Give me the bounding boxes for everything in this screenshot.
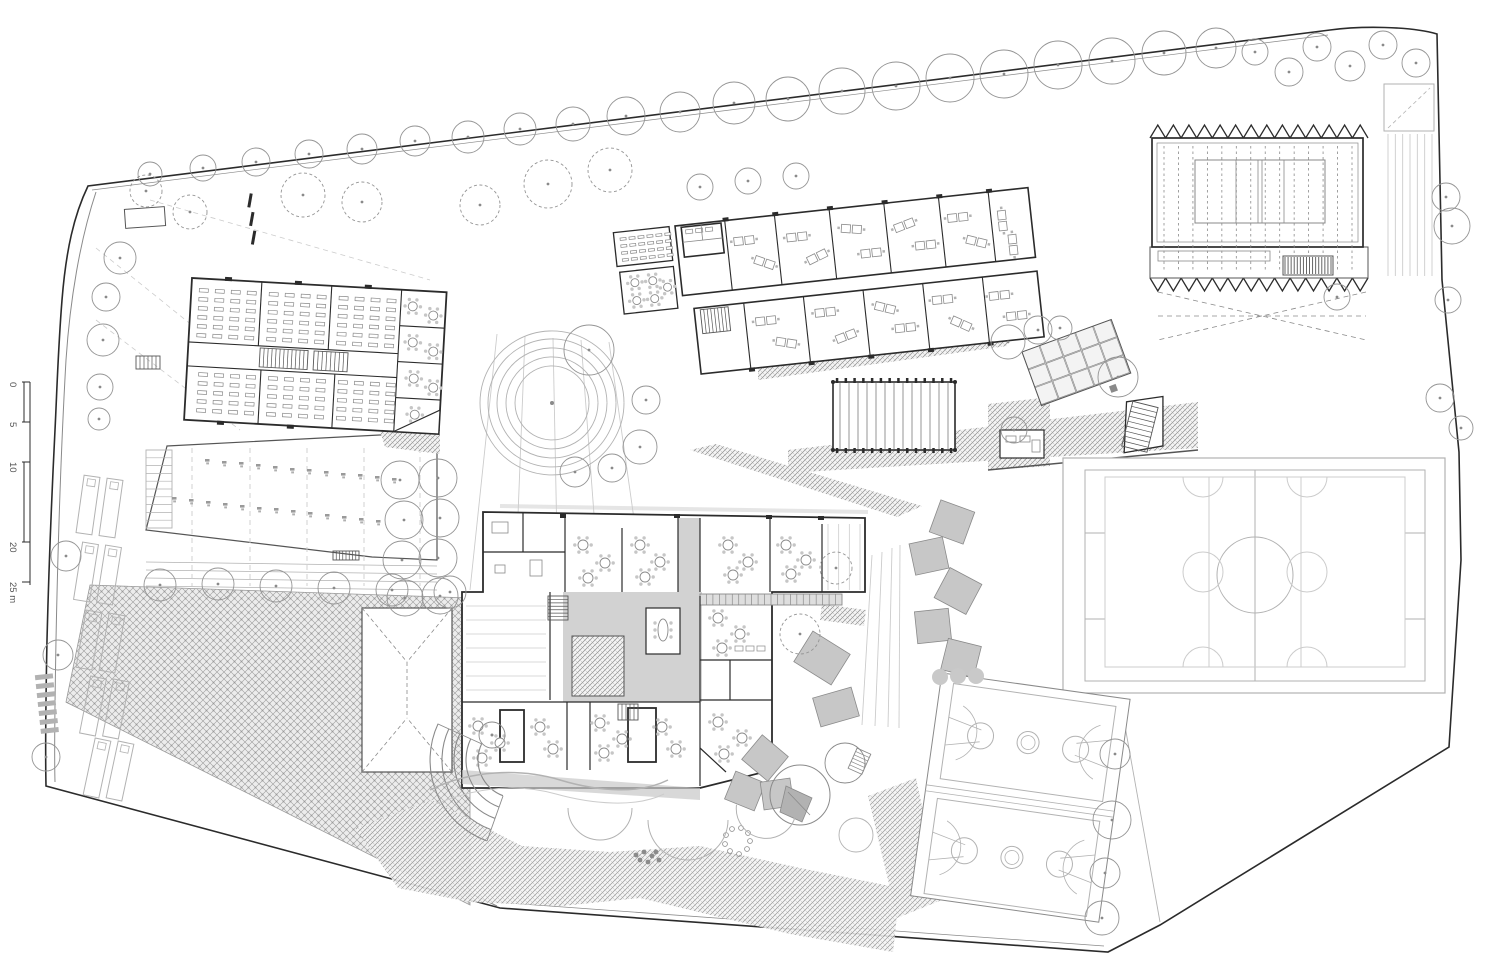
chair xyxy=(730,536,733,539)
tree-trunk xyxy=(1057,64,1060,67)
tree-trunk xyxy=(1445,196,1448,199)
tick xyxy=(880,448,883,453)
tick xyxy=(888,378,891,383)
desk xyxy=(301,303,310,307)
tree-trunk xyxy=(1415,62,1418,65)
desk xyxy=(369,409,378,413)
chair xyxy=(722,550,725,553)
tick xyxy=(906,448,909,453)
desk xyxy=(353,333,362,337)
tick xyxy=(871,448,874,453)
chair xyxy=(485,724,488,727)
chair xyxy=(590,721,593,724)
desk xyxy=(317,304,326,308)
tree-trunk xyxy=(189,211,192,214)
kiosk xyxy=(1000,430,1044,458)
desk xyxy=(269,301,278,305)
tree-trunk xyxy=(1288,71,1291,74)
tree-trunk xyxy=(572,123,575,126)
scale-bar: 05102025 m xyxy=(7,382,30,603)
chair xyxy=(647,543,650,546)
rect xyxy=(1150,247,1368,278)
yard-mark xyxy=(172,497,177,502)
chair xyxy=(607,568,610,571)
yard-mark xyxy=(291,510,296,515)
desk xyxy=(336,416,345,420)
rect xyxy=(674,514,680,518)
dot xyxy=(642,850,647,855)
chair xyxy=(736,743,739,746)
tree-trunk xyxy=(467,136,470,139)
group xyxy=(848,748,871,774)
tree xyxy=(968,668,984,684)
shelter xyxy=(124,207,165,229)
desk xyxy=(214,382,223,386)
chair xyxy=(480,731,483,734)
chair xyxy=(667,560,670,563)
sports-field xyxy=(1063,458,1445,693)
yard-mark xyxy=(206,501,211,506)
yard-mark xyxy=(256,464,261,469)
yard-mark xyxy=(290,468,295,473)
dot xyxy=(654,850,659,855)
chair xyxy=(598,758,601,761)
chair xyxy=(781,572,784,575)
tree xyxy=(504,113,536,145)
chair xyxy=(738,560,741,563)
desk xyxy=(215,289,224,293)
tree xyxy=(1434,208,1470,244)
line xyxy=(146,570,437,574)
line xyxy=(888,548,892,727)
tree xyxy=(460,185,500,225)
tick xyxy=(871,378,874,383)
desk xyxy=(229,326,238,330)
chair xyxy=(489,756,492,759)
desk xyxy=(630,250,636,253)
tree-trunk xyxy=(625,115,628,118)
tree-trunk xyxy=(1439,397,1442,400)
chair xyxy=(639,568,642,571)
tree-trunk xyxy=(439,595,442,598)
chair xyxy=(734,639,737,642)
desk xyxy=(283,395,292,399)
dot xyxy=(638,858,643,863)
tree-trunk xyxy=(217,583,220,586)
desk xyxy=(337,341,346,345)
desk xyxy=(337,332,346,336)
tree-trunk xyxy=(449,591,452,594)
tree-trunk xyxy=(414,140,417,143)
desk xyxy=(230,308,239,312)
chair xyxy=(472,756,475,759)
parking-stall xyxy=(83,738,111,798)
chair xyxy=(595,576,598,579)
chair xyxy=(725,616,728,619)
chair xyxy=(542,718,545,721)
tree xyxy=(1275,58,1303,86)
tree-trunk xyxy=(399,479,402,482)
tree-trunk xyxy=(98,418,101,421)
desk xyxy=(369,400,378,404)
chair xyxy=(560,747,563,750)
tick xyxy=(888,448,891,453)
dot xyxy=(550,401,554,405)
desk xyxy=(284,311,293,315)
chair xyxy=(642,536,645,539)
chair xyxy=(735,543,738,546)
chair xyxy=(653,628,656,631)
desk xyxy=(285,302,294,306)
tree xyxy=(421,499,459,537)
desk xyxy=(339,305,348,309)
chair xyxy=(611,751,614,754)
tick xyxy=(941,378,944,383)
chair xyxy=(793,543,796,546)
chair xyxy=(712,646,715,649)
shrub xyxy=(968,668,984,684)
tree xyxy=(88,408,110,430)
tree xyxy=(51,541,81,571)
tree-trunk xyxy=(1101,917,1104,920)
chair xyxy=(616,744,619,747)
yard-mark xyxy=(308,512,313,517)
chair xyxy=(669,621,672,624)
desk xyxy=(354,306,363,310)
tree xyxy=(1426,384,1454,412)
desk xyxy=(215,373,224,377)
dot xyxy=(723,842,728,847)
desk xyxy=(354,390,363,394)
desk xyxy=(354,381,363,385)
chair xyxy=(718,543,721,546)
tree-trunk xyxy=(1382,44,1385,47)
tree-trunk xyxy=(1104,872,1107,875)
tree xyxy=(104,242,136,274)
chair xyxy=(727,580,730,583)
sawtooth-roof-edge xyxy=(1150,125,1368,138)
rect xyxy=(225,277,232,281)
chair xyxy=(724,639,727,642)
chair xyxy=(669,628,672,631)
tree-trunk xyxy=(437,557,440,560)
polygon xyxy=(355,800,610,906)
chair xyxy=(650,560,653,563)
chair xyxy=(720,623,723,626)
chair xyxy=(720,727,723,730)
tree-trunk xyxy=(479,204,482,207)
tree xyxy=(1435,287,1461,313)
desk xyxy=(214,316,223,320)
chair xyxy=(585,536,588,539)
tick xyxy=(950,448,953,453)
desk xyxy=(640,256,646,259)
desk xyxy=(214,307,223,311)
tree-trunk xyxy=(119,257,122,260)
tree-trunk xyxy=(519,128,522,131)
desk xyxy=(656,233,662,236)
desk xyxy=(284,386,293,390)
desk xyxy=(666,246,672,249)
tick xyxy=(836,378,839,383)
chair xyxy=(530,725,533,728)
rect xyxy=(722,217,728,222)
tree xyxy=(1089,38,1135,84)
tree xyxy=(1402,49,1430,77)
tree xyxy=(1196,28,1236,68)
desk xyxy=(667,253,673,256)
stairs xyxy=(700,594,842,605)
chair xyxy=(716,639,719,642)
tree-trunk xyxy=(699,186,702,189)
desk xyxy=(370,307,379,311)
tree-trunk xyxy=(1114,753,1117,756)
rect xyxy=(929,500,974,544)
chair xyxy=(490,741,493,744)
site-plan-drawing: 05102025 m xyxy=(0,0,1500,979)
chair xyxy=(735,566,738,569)
chair xyxy=(776,543,779,546)
line xyxy=(899,545,900,728)
tree xyxy=(687,174,713,200)
chair xyxy=(590,543,593,546)
tick xyxy=(853,378,856,383)
tree xyxy=(173,195,207,229)
desk xyxy=(314,415,323,419)
tick xyxy=(915,378,918,383)
desk xyxy=(228,410,237,414)
desk xyxy=(199,373,208,377)
desk xyxy=(300,378,309,382)
chair xyxy=(788,550,791,553)
chair xyxy=(578,576,581,579)
chair xyxy=(742,639,745,642)
desk xyxy=(214,391,223,395)
stairs xyxy=(136,356,160,369)
desk xyxy=(267,394,276,398)
chair xyxy=(712,713,715,716)
tree-trunk xyxy=(159,584,162,587)
tree-trunk xyxy=(639,446,642,449)
chair xyxy=(714,752,717,755)
yard-mark xyxy=(392,478,397,483)
group xyxy=(911,673,1130,922)
desk xyxy=(213,400,222,404)
desk xyxy=(369,325,378,329)
dot xyxy=(730,827,735,832)
tree xyxy=(598,454,626,482)
rect xyxy=(987,341,993,346)
chair xyxy=(547,725,550,728)
rect xyxy=(794,631,850,685)
desk xyxy=(215,298,224,302)
tree xyxy=(1335,51,1365,81)
desk xyxy=(385,335,394,339)
chair xyxy=(749,736,752,739)
chair xyxy=(798,572,801,575)
desk xyxy=(649,255,655,258)
tree xyxy=(130,175,162,207)
desk xyxy=(299,330,308,334)
desk xyxy=(647,234,653,237)
school-building-northwest xyxy=(184,275,448,437)
tree-trunk xyxy=(308,153,311,156)
desk xyxy=(246,309,255,313)
tree-trunk xyxy=(1111,60,1114,63)
desk xyxy=(370,316,379,320)
rect xyxy=(39,709,57,716)
polygon xyxy=(780,786,812,822)
rect xyxy=(772,212,778,217)
desk xyxy=(338,314,347,318)
chair xyxy=(712,623,715,626)
dot xyxy=(634,853,639,858)
tree-trunk xyxy=(65,555,68,558)
shrub xyxy=(950,668,966,684)
rect xyxy=(827,206,833,211)
yard-mark xyxy=(376,520,381,525)
chair xyxy=(780,536,783,539)
rect xyxy=(818,516,824,520)
chair xyxy=(785,579,788,582)
rect xyxy=(560,514,566,518)
tree-trunk xyxy=(787,98,790,101)
chair xyxy=(656,718,659,721)
tick xyxy=(862,378,865,383)
tree-trunk xyxy=(403,519,406,522)
tree xyxy=(1303,33,1331,61)
yard-mark xyxy=(375,476,380,481)
line xyxy=(1388,88,1430,128)
scale-label: 25 m xyxy=(7,582,18,603)
chair xyxy=(708,616,711,619)
desk xyxy=(268,310,277,314)
chair xyxy=(730,632,733,635)
desk xyxy=(301,294,310,298)
chair xyxy=(472,731,475,734)
tree xyxy=(281,173,325,217)
desk xyxy=(246,375,255,379)
chair xyxy=(534,732,537,735)
tick xyxy=(932,378,935,383)
chair xyxy=(502,748,505,751)
tree-trunk xyxy=(1111,819,1114,822)
chair xyxy=(594,728,597,731)
tick xyxy=(897,378,900,383)
tree xyxy=(950,668,966,684)
chair xyxy=(731,752,734,755)
scale-label: 20 xyxy=(7,542,18,553)
tree xyxy=(385,501,423,539)
desk xyxy=(213,325,222,329)
tree-trunk xyxy=(799,633,802,636)
chair xyxy=(582,583,585,586)
chair xyxy=(664,718,667,721)
chair xyxy=(616,730,619,733)
yard-mark xyxy=(189,499,194,504)
rect xyxy=(911,673,1130,922)
chair xyxy=(629,737,632,740)
tick xyxy=(845,378,848,383)
tick xyxy=(897,448,900,453)
desk xyxy=(299,339,308,343)
tree xyxy=(735,168,761,194)
tree-trunk xyxy=(1013,429,1016,432)
desk xyxy=(316,313,325,317)
desk xyxy=(657,247,663,250)
tree xyxy=(1432,183,1460,211)
rect xyxy=(1152,138,1363,247)
chair xyxy=(547,754,550,757)
tree-trunk xyxy=(1349,65,1352,68)
chair xyxy=(468,724,471,727)
desk xyxy=(337,407,346,411)
tree xyxy=(347,134,377,164)
chair xyxy=(736,729,739,732)
desk xyxy=(352,342,361,346)
tree-trunk xyxy=(1007,341,1010,344)
tree xyxy=(87,324,119,356)
desk xyxy=(198,315,207,319)
tree xyxy=(564,325,614,375)
chair xyxy=(788,536,791,539)
tree-trunk xyxy=(99,386,102,389)
chair xyxy=(573,543,576,546)
tree xyxy=(1242,39,1268,65)
tree-trunk xyxy=(275,585,278,588)
tree xyxy=(980,50,1028,98)
chair xyxy=(534,718,537,721)
desk xyxy=(385,326,394,330)
chair xyxy=(808,565,811,568)
desk xyxy=(337,398,346,402)
tree-trunk xyxy=(1059,327,1062,330)
desk xyxy=(386,317,395,321)
desk xyxy=(245,336,254,340)
yard-mark xyxy=(205,459,210,464)
desk xyxy=(368,343,377,347)
chair xyxy=(718,745,721,748)
chair xyxy=(480,717,483,720)
polygon xyxy=(562,846,900,952)
chair xyxy=(712,727,715,730)
chair xyxy=(793,579,796,582)
rect xyxy=(249,212,254,226)
desk xyxy=(665,233,671,236)
chair xyxy=(726,759,729,762)
desk xyxy=(285,293,294,297)
scale-label: 5 xyxy=(7,422,18,427)
chair xyxy=(594,751,597,754)
rect xyxy=(572,636,624,696)
chair xyxy=(718,759,721,762)
tree-trunk xyxy=(1003,73,1006,76)
desk xyxy=(267,328,276,332)
tree-trunk xyxy=(895,85,898,88)
desk xyxy=(316,379,325,383)
desk xyxy=(353,324,362,328)
chair xyxy=(662,553,665,556)
desk xyxy=(368,418,377,422)
chair xyxy=(599,568,602,571)
line xyxy=(150,200,430,280)
tree xyxy=(623,430,657,464)
polygon xyxy=(820,604,866,626)
tree-trunk xyxy=(437,477,440,480)
chair xyxy=(732,736,735,739)
rect xyxy=(881,200,887,205)
desk xyxy=(282,413,291,417)
